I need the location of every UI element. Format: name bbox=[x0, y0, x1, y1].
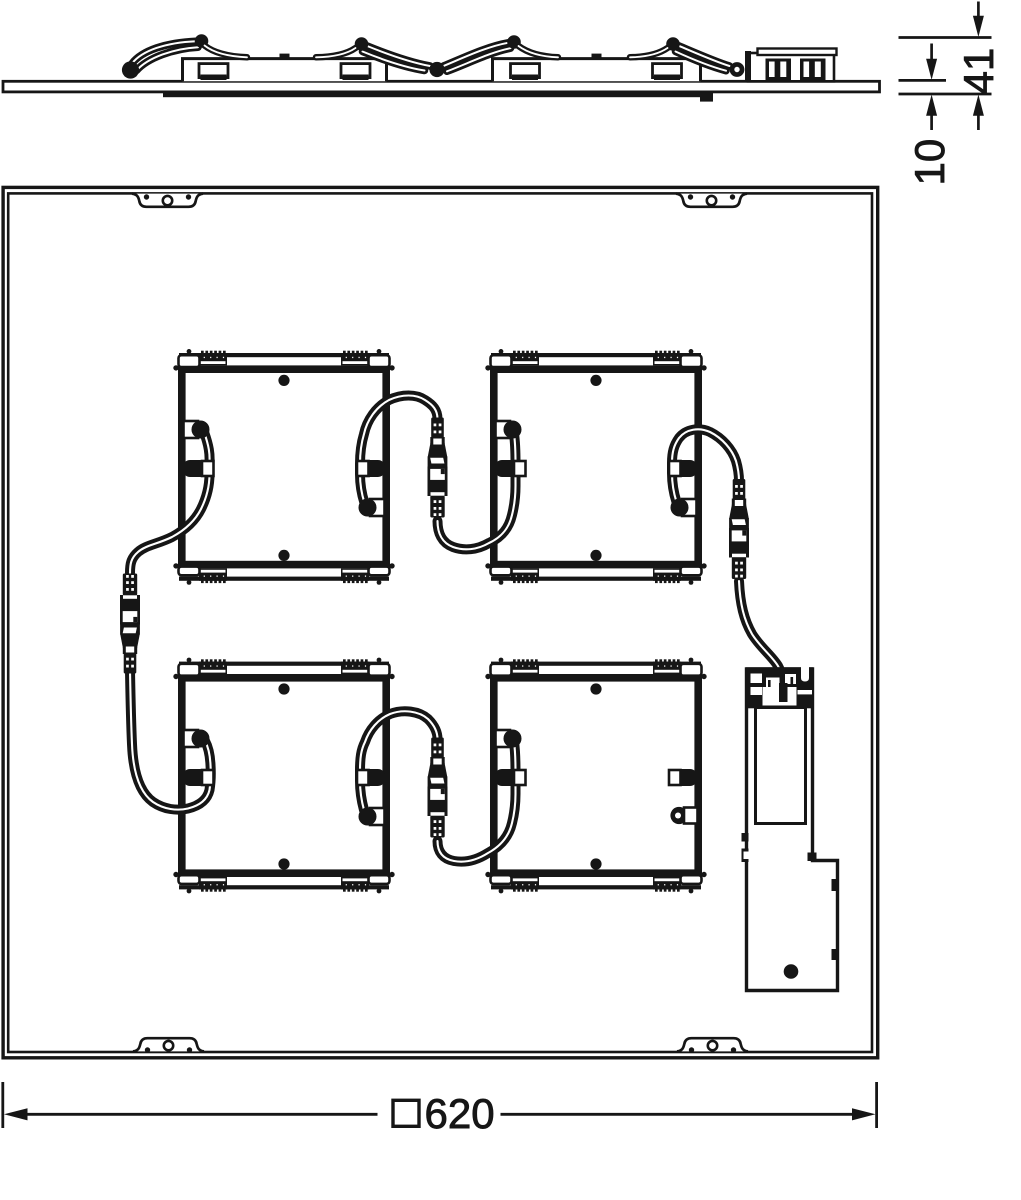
svg-text:41: 41 bbox=[955, 48, 1002, 95]
svg-text:620: 620 bbox=[425, 1090, 495, 1137]
svg-text:10: 10 bbox=[906, 139, 953, 186]
